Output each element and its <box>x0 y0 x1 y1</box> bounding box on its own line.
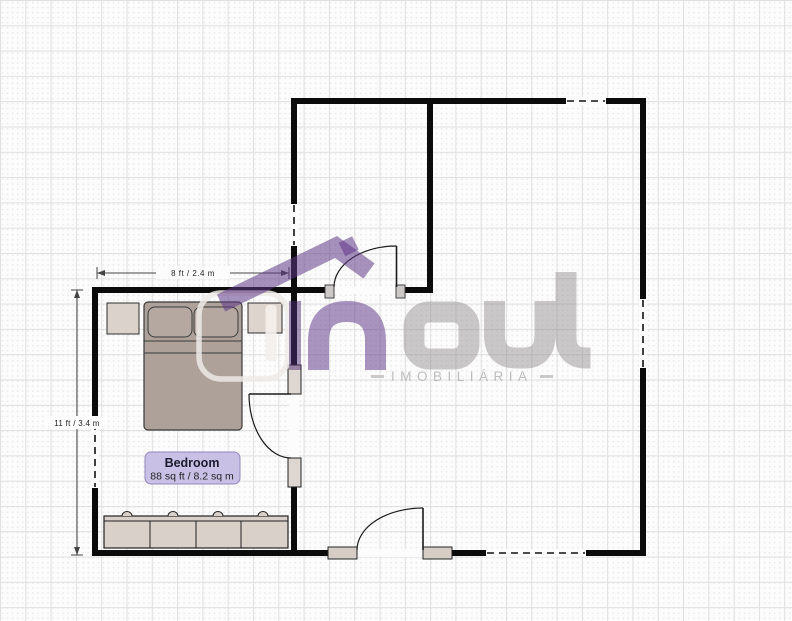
door-swing-arc <box>334 246 397 287</box>
door-jamb <box>325 285 334 298</box>
bed-pillow <box>194 307 238 337</box>
dimension-label-height: 11 ft / 3.4 m <box>54 419 100 428</box>
dresser-knob <box>122 512 132 517</box>
floorplan-canvas: 8 ft / 2.4 m11 ft / 3.4 mBedroom88 sq ft… <box>0 0 792 621</box>
nightstand[interactable] <box>107 303 139 334</box>
door-jamb <box>328 547 357 559</box>
window[interactable] <box>91 422 99 488</box>
door-jamb <box>396 285 405 298</box>
dimension-arrow <box>281 270 289 276</box>
dimension-arrow <box>74 547 80 555</box>
wall-interior-vertical[interactable] <box>427 98 433 293</box>
door-swing-arc <box>249 394 291 458</box>
dresser-knob <box>258 512 268 517</box>
dresser-knob <box>168 512 178 517</box>
bed-pillow <box>148 307 192 337</box>
door-jamb <box>423 547 452 559</box>
door-jamb <box>288 458 301 487</box>
door-opening <box>334 286 396 294</box>
dimension-label-width: 8 ft / 2.4 m <box>171 269 215 278</box>
dimension-arrow <box>74 290 80 298</box>
room-name: Bedroom <box>165 456 220 470</box>
room-area: 88 sq ft / 8.2 sq m <box>150 471 234 483</box>
door-jamb <box>288 365 301 394</box>
door-opening <box>289 394 299 458</box>
door-swing-arc <box>357 508 423 550</box>
floorplan-drawing: 8 ft / 2.4 m11 ft / 3.4 mBedroom88 sq ft… <box>0 0 792 621</box>
dimension-arrow <box>97 270 105 276</box>
dresser-knob <box>213 512 223 517</box>
door-opening <box>357 549 423 557</box>
window[interactable] <box>639 299 647 368</box>
cabinet[interactable] <box>248 303 282 333</box>
